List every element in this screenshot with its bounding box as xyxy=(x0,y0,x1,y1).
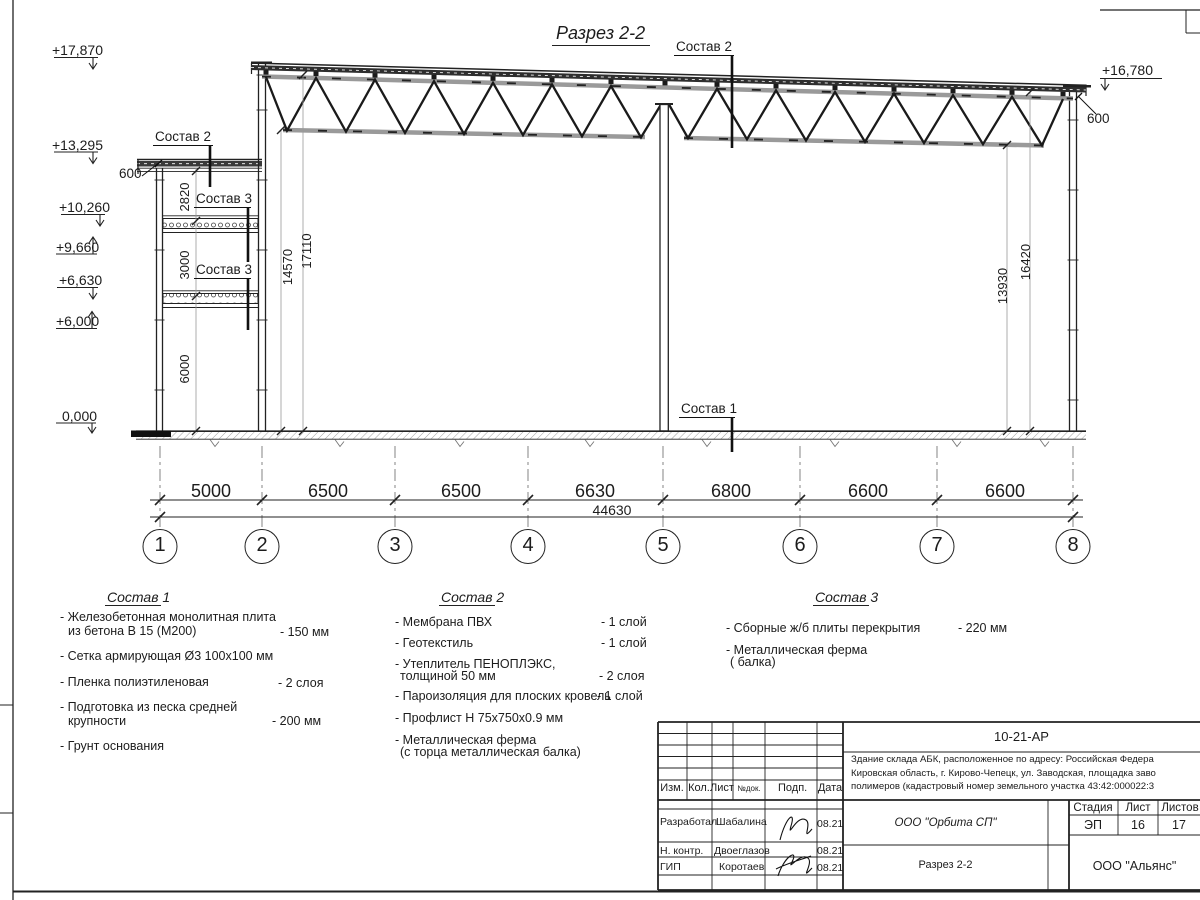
elevation-mark: +17,870 xyxy=(52,43,103,58)
stamp-signer-role: Н. контр. xyxy=(660,846,703,857)
legend-item: - Сетка армирующая Ø3 100х100 мм xyxy=(60,650,273,663)
span-dim: 6800 xyxy=(686,482,776,501)
stamp-sheets-value: 17 xyxy=(1155,819,1200,832)
span-dim: 6600 xyxy=(960,482,1050,501)
legend-heading-sostav3: Состав 3 xyxy=(815,590,878,605)
legend-item: ( балка) xyxy=(730,656,776,669)
elevation-mark: +9,660 xyxy=(56,240,99,255)
axis-bubble-label: 8 xyxy=(1056,535,1090,556)
stamp-sheets-label: Листов xyxy=(1156,802,1200,814)
stamp-signer-date: 08.21 xyxy=(817,819,843,830)
total-dim: 44630 xyxy=(577,503,647,518)
stamp-signer-role: ГИП xyxy=(660,862,681,873)
axis-bubble-label: 7 xyxy=(920,535,954,556)
drawing-title: Разрез 2-2 xyxy=(556,24,645,43)
legend-item: - Геотекстиль xyxy=(395,637,473,650)
legend-item: - Грунт основания xyxy=(60,740,164,753)
legend-value: - 2 слоя xyxy=(278,677,323,690)
stamp-description-line: полимеров (кадастровый номер земельного … xyxy=(851,782,1154,792)
legend-value: - 1 слой xyxy=(601,616,647,629)
vdim-hall-14570: 14570 xyxy=(281,232,297,302)
elevation-mark: +16,780 xyxy=(1102,63,1153,78)
legend-item: - Сборные ж/б плиты перекрытия xyxy=(726,622,920,635)
center-column xyxy=(655,104,673,431)
vdim-annex-2820: 2820 xyxy=(178,162,194,232)
stamp-org: ООО "Орбита СП" xyxy=(843,817,1048,829)
legend-item: - Железобетонная монолитная плита xyxy=(60,611,276,624)
vdim-annex-3000: 3000 xyxy=(178,230,194,300)
elevation-mark: +13,295 xyxy=(52,138,103,153)
axis-bubble-label: 6 xyxy=(783,535,817,556)
elevation-mark: +6,630 xyxy=(59,273,102,288)
stamp-sheet-label: Лист xyxy=(1114,802,1162,814)
hall-structure xyxy=(251,63,1091,431)
parapet-dim-right: 600 xyxy=(1087,112,1110,126)
stamp-stage-label: Стадия xyxy=(1069,802,1117,814)
legend-item: из бетона В 15 (М200) xyxy=(68,625,196,638)
elevation-mark: 0,000 xyxy=(62,409,97,424)
stamp-signer-role: Разработал xyxy=(660,817,717,828)
axis-bubble-label: 1 xyxy=(143,535,177,556)
axis-bubble-label: 5 xyxy=(646,535,680,556)
parapet-dim-left: 600 xyxy=(119,167,142,181)
stamp-stage-value: ЭП xyxy=(1069,819,1117,832)
stamp-rev-header: Изм. xyxy=(659,783,685,795)
vdim-hall-13930: 13930 xyxy=(996,251,1012,321)
callout-sostav3-lower: Состав 3 xyxy=(196,263,252,277)
stamp-signer-name: Коротаев xyxy=(719,862,764,873)
axis-bubble-label: 4 xyxy=(511,535,545,556)
legend-item: (с торца металлическая балка) xyxy=(400,746,581,759)
drawing-sheet: Разрез 2-2 +17,870 +13,295 +10,260 +9,66… xyxy=(0,0,1200,900)
stamp-rev-header: Лист xyxy=(709,783,735,795)
stamp-signer-date: 08.21 xyxy=(817,863,843,874)
legend-item: - Подготовка из песка средней xyxy=(60,701,237,714)
vertical-dim-ticks xyxy=(192,71,1034,435)
legend-value: - 1 слой xyxy=(597,690,643,703)
span-dim: 5000 xyxy=(166,482,256,501)
callout-sostav3-upper: Состав 3 xyxy=(196,192,252,206)
legend-item: - Пленка полиэтиленовая xyxy=(60,676,209,689)
vdim-annex-6000: 6000 xyxy=(178,334,194,404)
span-dim: 6500 xyxy=(416,482,506,501)
vertical-dim-lines xyxy=(196,75,1030,431)
axis-bubble-label: 3 xyxy=(378,535,412,556)
span-dim: 6600 xyxy=(823,482,913,501)
stamp-description-line: Кировская область, г. Кирово-Чепецк, ул.… xyxy=(851,769,1156,779)
vdim-hall-16420: 16420 xyxy=(1019,227,1035,297)
elevation-mark: +6,000 xyxy=(56,314,99,329)
callout-sostav2-roof: Состав 2 xyxy=(676,40,732,54)
legend-value: - 1 слой xyxy=(601,637,647,650)
elevation-flags xyxy=(54,58,1162,434)
callout-sostav2-annex: Состав 2 xyxy=(155,130,211,144)
legend-item: - Пароизоляция для плоских кровель xyxy=(395,690,611,703)
stamp-sheet-title: Разрез 2-2 xyxy=(843,860,1048,872)
stamp-rev-header: Подп. xyxy=(778,783,804,795)
stamp-contractor: ООО "Альянс" xyxy=(1069,860,1200,873)
elevation-mark: +10,260 xyxy=(59,200,110,215)
stamp-rev-header: №док. xyxy=(734,785,764,793)
floor-slab xyxy=(131,431,1086,447)
stamp-signer-date: 08.21 xyxy=(817,846,843,857)
legend-value: - 2 слоя xyxy=(599,670,644,683)
stamp-description-line: Здание склада АБК, расположенное по адре… xyxy=(851,755,1154,765)
callout-sostav1: Состав 1 xyxy=(681,402,737,416)
legend-item: - Профлист Н 75х750х0.9 мм xyxy=(395,712,563,725)
legend-value: - 150 мм xyxy=(280,626,329,639)
span-dim: 6630 xyxy=(550,482,640,501)
legend-value: - 220 мм xyxy=(958,622,1007,635)
span-dim: 6500 xyxy=(283,482,373,501)
stamp-signer-name: Двоеглазов xyxy=(714,846,770,857)
legend-heading-sostav1: Состав 1 xyxy=(107,590,170,605)
legend-item: крупности xyxy=(68,715,126,728)
stamp-signer-name: Шабалина xyxy=(716,817,767,828)
axis-bubble-label: 2 xyxy=(245,535,279,556)
signature-scribbles xyxy=(776,817,812,876)
legend-heading-sostav2: Состав 2 xyxy=(441,590,504,605)
stamp-doc-number: 10-21-АР xyxy=(843,730,1200,744)
stamp-rev-header: Дата xyxy=(817,783,843,795)
legend-value: - 200 мм xyxy=(272,715,321,728)
legend-item: толщиной 50 мм xyxy=(400,670,496,683)
vdim-hall-17110: 17110 xyxy=(300,216,316,286)
legend-item: - Мембрана ПВХ xyxy=(395,616,492,629)
